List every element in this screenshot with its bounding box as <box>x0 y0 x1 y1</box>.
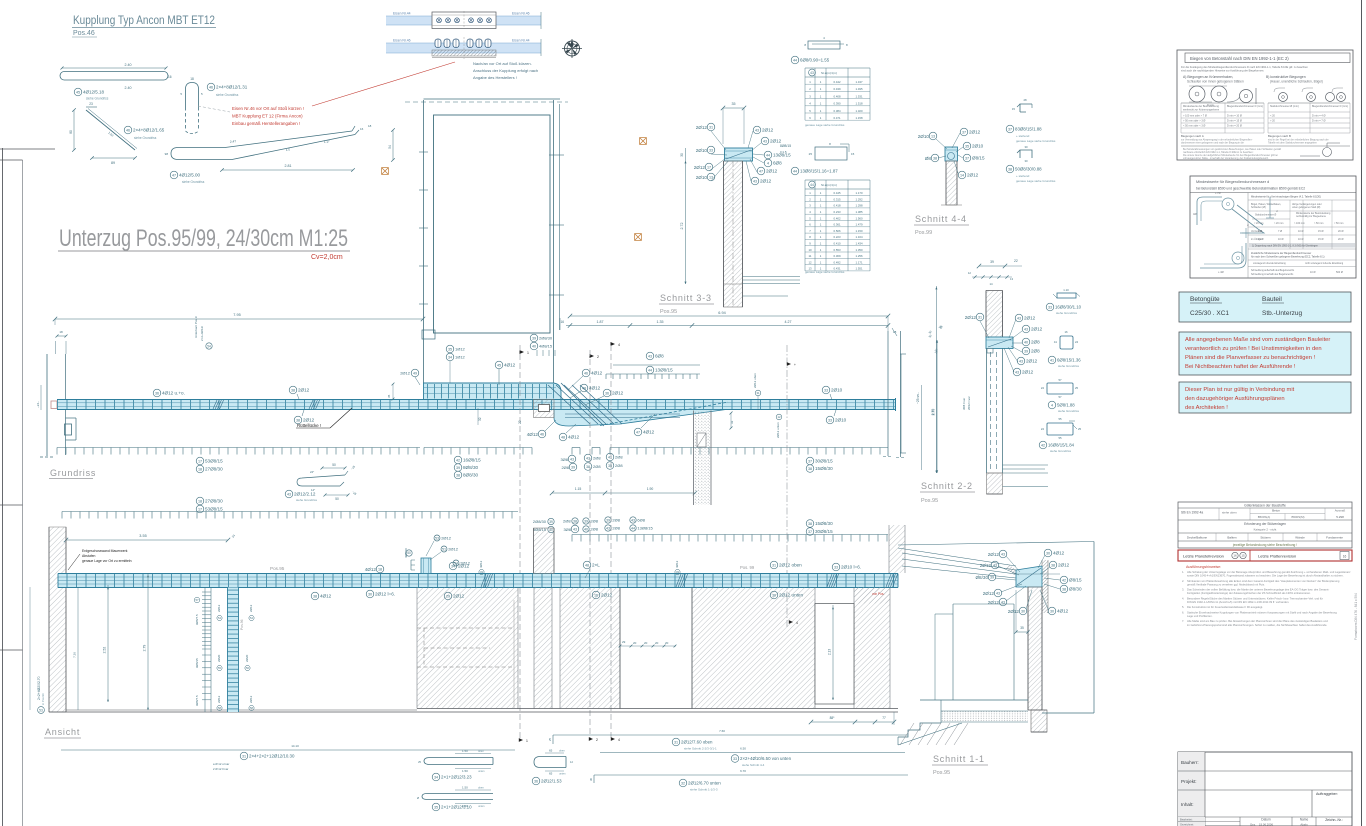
svg-text:43: 43 <box>570 457 574 461</box>
svg-text:Ø8/30: Ø8/30 <box>975 575 988 580</box>
svg-text:12: 12 <box>968 271 972 275</box>
svg-text:4Ø12: 4Ø12 <box>1053 551 1065 556</box>
svg-text:2Ø12: 2Ø12 <box>298 388 310 393</box>
svg-text:47: 47 <box>172 173 176 177</box>
svg-text:2Ø12/6.70 unten: 2Ø12/6.70 unten <box>688 781 721 786</box>
svg-text:31: 31 <box>756 391 760 395</box>
svg-text:31: 31 <box>772 563 776 567</box>
svg-text:4: 4 <box>1051 403 1053 407</box>
svg-text:14.10: 14.10 <box>291 744 299 748</box>
svg-text:gemäß Vertikale Passung zu ver: gemäß Vertikale Passung zu versehen ggf.… <box>1187 582 1265 586</box>
svg-text:6.50: 6.50 <box>740 747 746 751</box>
svg-text:89: 89 <box>111 161 115 165</box>
svg-text:Biegungen nach B: Biegungen nach B <box>1268 134 1291 138</box>
svg-text:37: 37 <box>808 459 812 463</box>
svg-text:2Ø12: 2Ø12 <box>400 371 411 376</box>
svg-text:2Ø8/30: 2Ø8/30 <box>539 336 553 341</box>
svg-text:1.35: 1.35 <box>657 320 664 324</box>
svg-text:C25/30 . XC1: C25/30 . XC1 <box>1190 310 1229 317</box>
svg-text:Einbau gemäß Herstellerangaben: Einbau gemäß Herstellerangaben ! <box>232 121 300 126</box>
svg-text:Pos.99: Pos.99 <box>915 230 932 236</box>
svg-text:34: 34 <box>448 355 452 359</box>
svg-text:Rüttellücke !: Rüttellücke ! <box>297 423 321 428</box>
svg-text:St a(m) l(m): St a(m) l(m) <box>821 183 837 187</box>
svg-text:20 Ø: 20 Ø <box>1338 230 1343 233</box>
svg-text:> 100 mm oder > 7 Ø: > 100 mm oder > 7 Ø <box>1183 115 1207 118</box>
svg-text:38: 38 <box>573 519 577 523</box>
svg-text:43: 43 <box>631 518 635 522</box>
svg-text:D min = 15 Ø: D min = 15 Ø <box>1227 120 1242 123</box>
svg-text:2Ø12: 2Ø12 <box>1008 609 1020 614</box>
svg-text:Inhalt:: Inhalt: <box>1181 802 1194 807</box>
svg-text:2Ø12: 2Ø12 <box>217 604 221 612</box>
svg-text:4: 4 <box>796 621 798 625</box>
svg-text:98: 98 <box>165 152 169 156</box>
svg-text:> 20: > 20 <box>1270 120 1276 123</box>
svg-text:30Ø8/15: 30Ø8/15 <box>815 459 833 464</box>
svg-text:39: 39 <box>571 465 575 469</box>
svg-text:38: 38 <box>456 473 460 477</box>
svg-text:2Ø10 l=6.: 2Ø10 l=6. <box>841 565 861 570</box>
svg-text:27Ø8/30: 27Ø8/30 <box>205 499 223 504</box>
svg-text:4Ø8/15: 4Ø8/15 <box>539 344 553 349</box>
svg-text:4Ø12: 4Ø12 <box>504 363 516 368</box>
svg-text:Erforderung der Stützenlagen: Erforderung der Stützenlagen <box>1244 522 1286 526</box>
svg-text:Auftraggeber:: Auftraggeber: <box>1316 792 1338 796</box>
svg-text:15Ø8/30: 15Ø8/30 <box>815 521 833 526</box>
svg-text:13Ø8/15: 13Ø8/15 <box>655 368 673 373</box>
svg-text:15Ø8/30: 15Ø8/30 <box>815 466 833 471</box>
svg-text:43: 43 <box>648 354 652 358</box>
svg-text:1.150: 1.150 <box>856 229 863 233</box>
svg-text:0.408: 0.408 <box>834 94 841 98</box>
svg-text:25: 25 <box>809 152 813 156</box>
svg-text:4Ø12 u.+o.: 4Ø12 u.+o. <box>162 391 185 396</box>
svg-text:Biegen von Betonstahl nach DIN: Biegen von Betonstahl nach DIN EN 1992-1… <box>1190 56 1289 61</box>
svg-text:Eisen Nr.46: Eisen Nr.46 <box>393 39 411 43</box>
svg-text:20: 20 <box>644 641 648 645</box>
svg-text:30: 30 <box>1021 609 1025 613</box>
svg-text:oben: oben <box>559 749 565 753</box>
svg-text:40: 40 <box>532 344 536 348</box>
svg-text:Die Konstruktion ist für Feuer: Die Konstruktion ist für Feuerwiderstand… <box>1187 605 1263 609</box>
svg-text:1.50: 1.50 <box>462 786 468 790</box>
svg-text:30: 30 <box>772 593 776 597</box>
svg-text:31: 31 <box>242 754 246 758</box>
svg-text:37: 37 <box>965 156 969 160</box>
svg-text:28: 28 <box>1023 98 1027 102</box>
svg-text:Stützen: Stützen <box>1260 536 1271 540</box>
svg-text:Bearbeitet:: Bearbeitet: <box>1180 818 1193 822</box>
svg-text:10 Ø: 10 Ø <box>1258 238 1263 241</box>
svg-text:17: 17 <box>198 507 202 511</box>
svg-text:Stirnkanten von Plattenbewehru: Stirnkanten von Plattenbewehrung alle Ec… <box>1187 579 1340 583</box>
svg-text:Alle Maße sind am Bau zu prüfe: Alle Maße sind am Bau zu prüfen. Bei Abw… <box>1187 619 1328 623</box>
svg-text:4Ø12: 4Ø12 <box>527 432 539 437</box>
svg-text:Erdgeschosswand Mauerwerk: Erdgeschosswand Mauerwerk <box>82 549 128 553</box>
svg-text:Projekt:: Projekt: <box>1181 779 1197 784</box>
svg-text:2×4+8Ø12/1.31: 2×4+8Ø12/1.31 <box>216 85 248 90</box>
svg-text:13: 13 <box>1010 277 1014 281</box>
svg-text:43: 43 <box>763 139 767 143</box>
svg-text:Stb.-Unterzug: Stb.-Unterzug <box>1262 310 1302 317</box>
svg-text:25: 25 <box>548 737 552 741</box>
svg-text:37: 37 <box>1008 127 1012 131</box>
svg-text:Bauteil: Bauteil <box>1262 296 1282 303</box>
svg-text:1.551: 1.551 <box>856 267 863 271</box>
svg-text:42: 42 <box>1041 443 1045 447</box>
svg-text:2Ø12: 2Ø12 <box>696 125 708 130</box>
svg-text:50Ø8/30/0.88: 50Ø8/30/0.88 <box>1015 167 1042 172</box>
svg-text:2Ø12: 2Ø12 <box>448 547 459 552</box>
svg-text:Alle angegebenen Maße sind vom: Alle angegebenen Maße sind vom zuständig… <box>1185 337 1330 343</box>
svg-text:43: 43 <box>573 527 577 531</box>
svg-text:43: 43 <box>287 492 291 496</box>
svg-text:Schnitt 2-2: Schnitt 2-2 <box>921 481 973 491</box>
svg-text:1.164: 1.164 <box>856 235 863 239</box>
svg-text:siehe Grundriss: siehe Grundriss <box>1058 364 1080 368</box>
svg-text:20 Ø: 20 Ø <box>1338 238 1343 241</box>
svg-text:54: 54 <box>207 344 211 348</box>
svg-text:Unterkant Pos.9: Unterkant Pos.9 <box>194 316 198 338</box>
svg-text:2Ø12: 2Ø12 <box>762 128 774 133</box>
svg-text:Tabelle mit dem Stabdurchmesse: Tabelle mit dem Stabdurchmesser angegebe… <box>1268 142 1317 145</box>
svg-text:44: 44 <box>810 183 814 187</box>
svg-text:1.158: 1.158 <box>856 116 863 120</box>
svg-text:2.40: 2.40 <box>125 63 132 67</box>
svg-text:24°: 24° <box>310 470 314 474</box>
svg-text:5Ø8/1.88: 5Ø8/1.88 <box>1057 403 1075 408</box>
svg-text:siehe Schnitt 2-2/3-3/1-1: siehe Schnitt 2-2/3-3/1-1 <box>684 747 717 751</box>
svg-text:32: 32 <box>730 420 734 424</box>
svg-text:< 20: < 20 <box>1270 115 1276 118</box>
svg-text:50: 50 <box>332 463 336 467</box>
svg-text:43: 43 <box>1015 370 1019 374</box>
svg-text:38: 38 <box>586 465 590 469</box>
svg-text:30Ø8/15: 30Ø8/15 <box>815 529 833 534</box>
svg-text:38: 38 <box>933 156 937 160</box>
svg-text:genaue Lage siehe Grundriss: genaue Lage siehe Grundriss <box>805 123 845 127</box>
svg-text:Pos.95: Pos.95 <box>270 566 285 571</box>
svg-text:38: 38 <box>313 594 317 598</box>
svg-text:54: 54 <box>388 145 392 149</box>
svg-text:57: 57 <box>1058 395 1062 399</box>
svg-text:2.: 2. <box>1182 579 1184 583</box>
svg-text:siehe Schnitt 4-4: siehe Schnitt 4-4 <box>742 763 765 767</box>
svg-text:33: 33 <box>1048 305 1052 309</box>
svg-text:30: 30 <box>1046 551 1050 555</box>
svg-text:39: 39 <box>456 466 460 470</box>
svg-text:Ansicht: Ansicht <box>45 727 80 737</box>
svg-text:Schnitt 3-3: Schnitt 3-3 <box>660 293 712 303</box>
svg-text:10 Ø: 10 Ø <box>1278 238 1283 241</box>
svg-text:Stabdurchmesser Ø (mm): Stabdurchmesser Ø (mm) <box>1270 105 1299 108</box>
svg-text:44: 44 <box>793 169 797 173</box>
svg-text:13Ø8/15/1.16=1.87: 13Ø8/15/1.16=1.87 <box>800 169 838 174</box>
svg-text:47: 47 <box>636 430 640 434</box>
svg-text:41: 41 <box>1050 358 1054 362</box>
svg-text:4: 4 <box>767 161 769 165</box>
svg-text:Bauherr:: Bauherr: <box>1181 760 1199 765</box>
svg-text:37: 37 <box>962 130 966 134</box>
svg-text:2Ø8: 2Ø8 <box>615 463 623 468</box>
svg-text:a Ø 12 u=var: a Ø 12 u=var <box>213 762 229 766</box>
svg-text:1.479: 1.479 <box>856 223 863 227</box>
svg-text:genaue Lage siehe Grundriss: genaue Lage siehe Grundriss <box>1016 179 1056 183</box>
svg-text:6Ø8/15/1.36: 6Ø8/15/1.36 <box>1057 358 1081 363</box>
svg-text:4.27: 4.27 <box>785 320 792 324</box>
svg-text:3Ø8: 3Ø8 <box>563 527 571 532</box>
svg-text:Pos.95: Pos.95 <box>921 498 938 504</box>
svg-text:oben: oben <box>478 749 484 753</box>
svg-text:Betongüte: Betongüte <box>1190 296 1220 303</box>
svg-text:16: 16 <box>1233 554 1237 558</box>
svg-text:sind auch die nachfolgenden Hi: sind auch die nachfolgenden Hinweise zur… <box>1181 69 1264 73</box>
svg-text:2Ø12: 2Ø12 <box>460 561 471 566</box>
svg-text:l=1.5: l=1.5 <box>780 150 787 154</box>
svg-text:36: 36 <box>155 391 159 395</box>
svg-text:43: 43 <box>1001 552 1005 556</box>
svg-text:2.13: 2.13 <box>828 649 832 655</box>
svg-text:rechtwinklig zur Biegeebene: rechtwinklig zur Biegeebene <box>1296 215 1327 218</box>
svg-text:0.309: 0.309 <box>834 254 841 258</box>
svg-text:1) Doppelung nach DIN EN 1992-: 1) Doppelung nach DIN EN 1992-1-1, 8.3 (… <box>1252 245 1319 248</box>
svg-text:Eisen Nr.44: Eisen Nr.44 <box>512 39 530 43</box>
svg-text:Schweißung innerhalb des Biege: Schweißung innerhalb des Biegebereichs <box>1251 273 1294 276</box>
svg-text:2Ø12 unten: 2Ø12 unten <box>776 422 780 438</box>
svg-text:Mindestwerte für Biegerollendu: Mindestwerte für Biegerollendurchmesser … <box>1196 180 1269 184</box>
svg-text:siehe Grundriss: siehe Grundriss <box>86 97 109 101</box>
svg-text:2Ø12: 2Ø12 <box>453 594 465 599</box>
svg-text:42: 42 <box>1062 578 1066 582</box>
svg-text:48: 48 <box>585 563 589 567</box>
svg-text:Anschluss der Kupplung erfolgt: Anschluss der Kupplung erfolgt nach <box>473 68 538 73</box>
svg-text:Letzte Planstellrevision: Letzte Planstellrevision <box>1183 554 1224 559</box>
svg-text:2Ø8/30: 2Ø8/30 <box>533 519 547 524</box>
svg-text:Statische Einzelnachweise Kopp: Statische Einzelnachweise Kopplungen von… <box>1187 610 1337 614</box>
svg-text:37: 37 <box>808 530 812 534</box>
svg-text:Mindestwerte für d bei einachs: Mindestwerte für d bei einachsigen Biege… <box>1251 196 1321 199</box>
svg-text:von Pos.: von Pos. <box>872 592 885 596</box>
svg-text:4Ø12/5.00: 4Ø12/5.00 <box>179 173 201 178</box>
svg-text:2Ø12: 2Ø12 <box>441 536 452 541</box>
svg-text:65: 65 <box>549 772 553 776</box>
svg-text:18: 18 <box>190 77 194 81</box>
svg-text:1.437: 1.437 <box>856 80 863 84</box>
svg-text:38: 38 <box>808 522 812 526</box>
svg-text:Pos.96: Pos.96 <box>240 619 244 630</box>
svg-text:2Ø8: 2Ø8 <box>590 527 598 532</box>
svg-text:1.15: 1.15 <box>575 487 582 491</box>
svg-text:Ø: Ø <box>417 796 419 800</box>
svg-text:A) Biegungen an Krümmerhaken,: A) Biegungen an Krümmerhaken, <box>1183 75 1233 79</box>
svg-text:bei Betonstahl B500 und geschw: bei Betonstahl B500 und geschweißte Beto… <box>1196 187 1305 191</box>
svg-text:Angabe des Herstellers !: Angabe des Herstellers ! <box>473 75 517 80</box>
svg-text:siehe Grundriss: siehe Grundriss <box>1056 311 1078 315</box>
svg-text:2Ø20: 2Ø20 <box>217 654 221 662</box>
svg-text:1.385: 1.385 <box>856 210 863 214</box>
svg-text:2Ø12: 2Ø12 <box>965 315 977 320</box>
svg-text:5.: 5. <box>1182 605 1184 609</box>
svg-text:1.17: 1.17 <box>324 139 331 144</box>
svg-text:16Ø8/15: 16Ø8/15 <box>463 458 481 463</box>
svg-text:30: 30 <box>680 153 684 157</box>
svg-text:Biegerollendurchmesser D (mm): Biegerollendurchmesser D (mm) <box>1227 105 1263 108</box>
svg-text:Abeln: Abeln <box>1300 822 1308 826</box>
svg-text:des Architekten !: des Architekten ! <box>1185 405 1228 411</box>
svg-text:1.171: 1.171 <box>856 260 863 264</box>
svg-text:24: 24 <box>1041 427 1045 431</box>
svg-text:Decke/Balkone: Decke/Balkone <box>1187 536 1208 540</box>
svg-text:0.361: 0.361 <box>834 223 841 227</box>
svg-text:Pos.95: Pos.95 <box>933 770 950 776</box>
svg-text:34: 34 <box>434 775 438 779</box>
svg-text:2Ø10: 2Ø10 <box>696 175 708 180</box>
svg-text:40: 40 <box>584 527 588 531</box>
svg-text:32: 32 <box>478 417 482 421</box>
svg-text:Gez.: Gez. <box>1250 822 1256 826</box>
svg-text:siehe oben: siehe oben <box>1222 511 1237 515</box>
svg-text:siehe Grundriss: siehe Grundriss <box>182 180 205 184</box>
svg-text:0.315: 0.315 <box>834 197 841 201</box>
svg-text:Schlaufen (Ø): Schlaufen (Ø) <box>1251 206 1266 209</box>
svg-text:2Ø12: 2Ø12 <box>766 169 778 174</box>
svg-text:41: 41 <box>1054 340 1058 344</box>
svg-text:> 20 mm: > 20 mm <box>1274 222 1283 225</box>
svg-text:0.384: 0.384 <box>834 109 841 113</box>
svg-text:2Ø10: 2Ø10 <box>835 418 847 423</box>
svg-text:Fundamente: Fundamente <box>1326 536 1343 540</box>
svg-text:1.518: 1.518 <box>856 102 863 106</box>
svg-text:B500S(M): B500S(M) <box>1291 515 1304 519</box>
svg-text:36: 36 <box>605 391 609 395</box>
svg-text:2Ø10: 2Ø10 <box>696 148 708 153</box>
svg-text:9Ø8/7.5: 9Ø8/7.5 <box>195 614 199 625</box>
svg-text:15 Ø: 15 Ø <box>1318 238 1323 241</box>
svg-text:6Ø8: 6Ø8 <box>773 161 782 166</box>
svg-text:77: 77 <box>882 716 886 720</box>
svg-text:0.439: 0.439 <box>834 87 841 91</box>
svg-text:1.434: 1.434 <box>856 242 863 246</box>
svg-text:16: 16 <box>168 75 172 79</box>
svg-text:14: 14 <box>960 173 964 177</box>
svg-text:2Ø12: 2Ø12 <box>770 139 782 144</box>
svg-text:0.223: 0.223 <box>834 235 841 239</box>
svg-text:1.256: 1.256 <box>856 254 863 258</box>
svg-text:44: 44 <box>631 526 635 530</box>
svg-text:30: 30 <box>589 777 593 781</box>
svg-text:unten: unten <box>478 769 485 773</box>
svg-text:Pos. 99: Pos. 99 <box>740 565 755 570</box>
svg-text:32: 32 <box>681 781 685 785</box>
svg-text:siehe Schnitt 1-1/3-3: siehe Schnitt 1-1/3-3 <box>690 788 718 792</box>
svg-text:4 Ø: 4 Ø <box>1258 230 1262 233</box>
svg-text:Lage und Profilierten.: Lage und Profilierten. <box>1187 614 1213 618</box>
svg-text:0.471: 0.471 <box>834 116 841 120</box>
svg-text:27Ø8/30: 27Ø8/30 <box>205 467 223 472</box>
svg-text:2Ø10: 2Ø10 <box>831 388 843 393</box>
svg-text:0.506: 0.506 <box>834 229 841 233</box>
svg-text:Biegungen nach A: Biegungen nach A <box>1181 134 1204 138</box>
svg-text:jeweilige Betondeckung siehe B: jeweilige Betondeckung siehe Beschreibun… <box>1232 543 1297 547</box>
svg-text:2Ø12: 2Ø12 <box>612 391 624 396</box>
svg-text:38: 38 <box>1008 167 1012 171</box>
svg-text:4Ø: 4Ø <box>1193 212 1196 216</box>
svg-text:45: 45 <box>497 363 501 367</box>
svg-text:65: 65 <box>549 749 553 753</box>
svg-text:30: 30 <box>368 592 372 596</box>
svg-text:18: 18 <box>378 567 382 571</box>
svg-text:2Ø12 oben: 2Ø12 oben <box>753 373 757 388</box>
svg-text:siehe Grundriss: siehe Grundriss <box>1050 449 1072 453</box>
svg-text:7.60: 7.60 <box>719 729 725 733</box>
svg-text:2.47: 2.47 <box>230 139 237 144</box>
svg-text:Eisen Nr.44: Eisen Nr.44 <box>393 12 411 16</box>
svg-text:44: 44 <box>766 153 770 157</box>
svg-text:0.442: 0.442 <box>834 80 841 84</box>
svg-text:35: 35 <box>732 102 736 106</box>
svg-text:2Ø12: 2Ø12 <box>980 563 992 568</box>
svg-text:Pos.95: Pos.95 <box>660 309 677 315</box>
svg-text:2Ø12: 2Ø12 <box>249 604 253 612</box>
svg-text:3.: 3. <box>1182 588 1184 592</box>
svg-text:2Ø10: 2Ø10 <box>972 144 984 149</box>
svg-text:1: 1 <box>526 739 528 743</box>
svg-text:2×2+4Ø10/6.50 von unten: 2×2+4Ø10/6.50 von unten <box>740 756 792 761</box>
svg-text:49: 49 <box>413 371 417 375</box>
svg-text:16: 16 <box>594 593 598 597</box>
svg-text:2Ø8: 2Ø8 <box>1031 340 1040 345</box>
svg-text:2Ø12: 2Ø12 <box>1022 370 1034 375</box>
svg-text:38: 38 <box>808 467 812 471</box>
svg-text:2Ø12: 2Ø12 <box>969 130 981 135</box>
svg-text:43: 43 <box>1001 600 1005 604</box>
svg-text:2Ø8: 2Ø8 <box>593 456 601 461</box>
svg-text:+: + <box>794 363 796 367</box>
svg-text:43: 43 <box>1017 316 1021 320</box>
svg-text:Grundriss: Grundriss <box>50 468 96 478</box>
svg-text:Formatnorm DIN 476 - 841 x 594: Formatnorm DIN 476 - 841 x 594 <box>1354 593 1358 640</box>
svg-text:16Ø8/15/1.84: 16Ø8/15/1.84 <box>1048 443 1075 448</box>
svg-text:12: 12 <box>808 260 812 264</box>
svg-text:2Ø12: 2Ø12 <box>601 593 613 598</box>
svg-text:> 50 mm oder > 3 Ø: > 50 mm oder > 3 Ø <box>1183 120 1205 123</box>
svg-text:siehe Grundriss: siehe Grundriss <box>134 136 157 140</box>
svg-text:9Ø8/7.5: 9Ø8/7.5 <box>195 695 199 706</box>
svg-text:1.90: 1.90 <box>647 487 654 491</box>
svg-text:50: 50 <box>407 551 411 555</box>
svg-text:Eisen Nr.46 vor Ort auf Stoß k: Eisen Nr.46 vor Ort auf Stoß kürzen ! <box>232 106 304 111</box>
svg-text:42: 42 <box>456 458 460 462</box>
svg-text:Kategorie 2 - nicht: Kategorie 2 - nicht <box>1254 528 1277 532</box>
svg-text:B500S(A): B500S(A) <box>1258 515 1271 519</box>
svg-text:54: 54 <box>454 561 458 565</box>
svg-text:Ø8/30: Ø8/30 <box>1069 587 1082 592</box>
svg-text:2Ø8: 2Ø8 <box>590 519 598 524</box>
svg-text:0.445: 0.445 <box>834 191 841 195</box>
svg-text:43: 43 <box>993 563 997 567</box>
svg-text:57: 57 <box>195 598 199 602</box>
svg-text:1.5: 1.5 <box>286 147 291 152</box>
svg-text:oben: oben <box>478 786 484 790</box>
svg-text:St a(m) l(m): St a(m) l(m) <box>821 71 837 75</box>
svg-text:~25~: ~25~ <box>916 392 920 399</box>
svg-text:45: 45 <box>76 90 80 94</box>
svg-text:2Ø12: 2Ø12 <box>1058 563 1070 568</box>
svg-text:siehe Grundriss: siehe Grundriss <box>1058 409 1080 413</box>
svg-text:2Ø12 l=var: 2Ø12 l=var <box>967 396 971 410</box>
svg-text:2Ø12: 2Ø12 <box>694 165 706 170</box>
